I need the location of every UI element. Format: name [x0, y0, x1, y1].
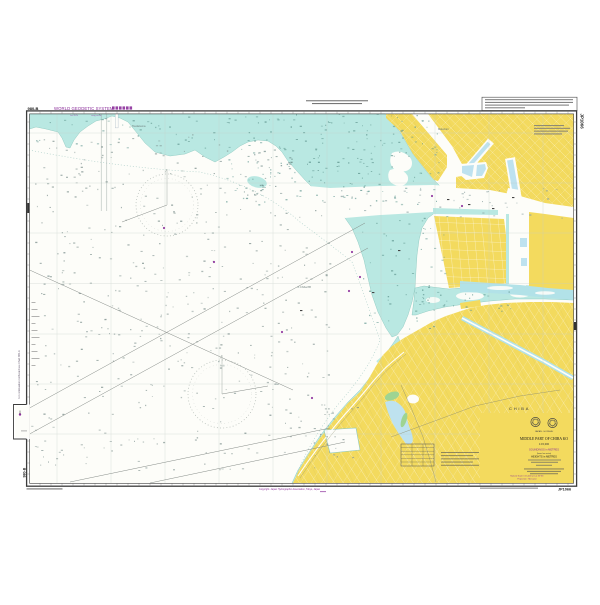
svg-text:CHIBA: CHIBA — [509, 406, 530, 411]
svg-text:Makuhari: Makuhari — [438, 127, 449, 131]
svg-text:SOUNDINGS in METRES: SOUNDINGS in METRES — [529, 448, 559, 452]
svg-text:Lat 35°N: Lat 35°N — [70, 114, 78, 117]
svg-text:Tsudanuma: Tsudanuma — [132, 124, 146, 128]
svg-text:JP1066: JP1066 — [558, 488, 571, 492]
svg-text:1:15,000: 1:15,000 — [539, 442, 550, 446]
svg-text:JAPAN - HONSHU: JAPAN - HONSHU — [535, 430, 554, 433]
svg-text:Chiba Ko: Chiba Ko — [300, 285, 311, 289]
svg-text:For continuation northward see: For continuation northward see Chart 980… — [18, 350, 21, 399]
svg-text:JP1066: JP1066 — [580, 114, 585, 130]
svg-text:980-B: 980-B — [23, 467, 27, 477]
svg-text:MIDDLE PART OF CHIBA KO: MIDDLE PART OF CHIBA KO — [520, 437, 568, 441]
svg-text:Copyright. Japan Hydrographic: Copyright. Japan Hydrographic Associatio… — [259, 488, 321, 491]
svg-text:980-B: 980-B — [28, 106, 39, 111]
svg-text:Long 140°E: Long 140°E — [91, 115, 102, 117]
svg-text:Projection : Mercator: Projection : Mercator — [517, 477, 536, 480]
svg-text:(lower low water): (lower low water) — [537, 452, 552, 455]
svg-text:Natural Scale 1:15,000 at Lat: Natural Scale 1:15,000 at Lat 35°35' — [510, 475, 544, 478]
svg-text:WORLD GEODETIC SYSTEM: WORLD GEODETIC SYSTEM — [54, 106, 114, 111]
svg-text:HEIGHTS in METRES: HEIGHTS in METRES — [531, 455, 557, 459]
